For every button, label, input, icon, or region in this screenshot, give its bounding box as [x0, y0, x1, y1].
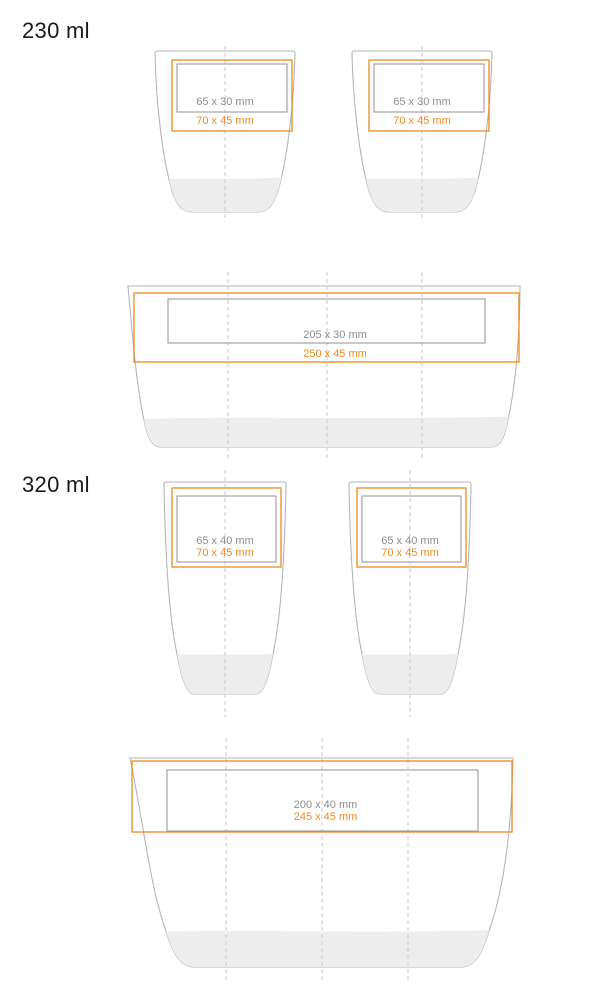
max-print-area-size-label: 70 x 45 mm	[152, 116, 298, 127]
volume-label-320: 320 ml	[22, 472, 90, 498]
print-area-size-label: 65 x 40 mm	[347, 536, 473, 547]
cup-base-shading	[125, 416, 525, 464]
volume-label-230: 230 ml	[22, 18, 90, 44]
cup-320-drawing	[347, 468, 473, 720]
print-area-size-label: 65 x 30 mm	[349, 97, 495, 108]
cup-320-wrap-drawing	[125, 735, 520, 990]
cup-320-front-view-1: 65 x 40 mm 70 x 45 mm	[162, 468, 288, 720]
cup-320-wrap-view: 200 x 40 mm 245 x 45 mm	[125, 735, 520, 990]
cup-230-front-view-1: 65 x 30 mm 70 x 45 mm	[152, 44, 298, 224]
cup-230-drawing	[349, 44, 495, 224]
print-area-size-label: 65 x 30 mm	[152, 97, 298, 108]
cup-230-front-view-2: 65 x 30 mm 70 x 45 mm	[349, 44, 495, 224]
cup-230-drawing	[152, 44, 298, 224]
max-print-area-size-label: 250 x 45 mm	[135, 349, 535, 360]
cup-230-wrap-drawing	[125, 268, 525, 464]
cup-320-front-view-2: 65 x 40 mm 70 x 45 mm	[347, 468, 473, 720]
cup-320-drawing	[162, 468, 288, 720]
max-print-area-size-label: 245 x 45 mm	[128, 812, 523, 823]
cup-230-wrap-view: 205 x 30 mm 250 x 45 mm	[125, 268, 525, 464]
print-area-size-label: 200 x 40 mm	[128, 800, 523, 811]
print-area-size-label: 65 x 40 mm	[162, 536, 288, 547]
cup-print-area-diagram: 230 ml 65 x 30 mm 70 x 45 mm 65 x 30 mm …	[0, 0, 600, 1000]
max-print-area-size-label: 70 x 45 mm	[347, 548, 473, 559]
cup-base-shading	[125, 929, 520, 990]
max-print-area-size-label: 70 x 45 mm	[162, 548, 288, 559]
print-area-size-label: 205 x 30 mm	[135, 330, 535, 341]
max-print-area-size-label: 70 x 45 mm	[349, 116, 495, 127]
